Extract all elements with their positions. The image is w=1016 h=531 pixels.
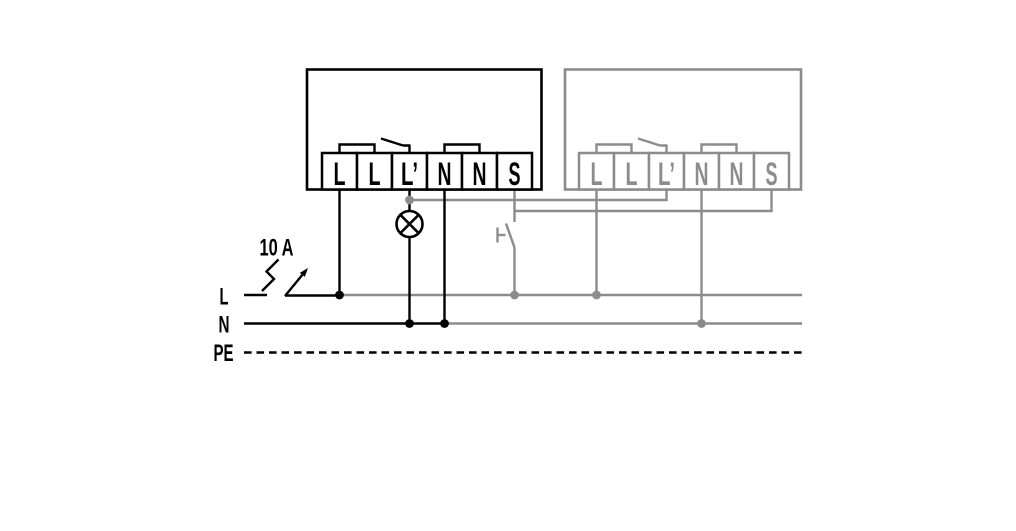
junction-dot [697,319,706,328]
junction-dot [592,291,601,300]
labels: 10 A L N PE [214,235,294,368]
wiring-diagram-canvas: L L L’ N N S [0,0,1016,531]
terminal-label: S [509,156,521,192]
terminal-label: N [730,156,744,192]
push-button-icon [498,224,515,248]
breaker-rating-label: 10 A [260,235,294,262]
device-2-group: L L L’ N N S [565,70,801,193]
device-1-group: L L L’ N N S [307,70,542,193]
terminal-label: L [626,156,638,192]
terminal-label: S [766,156,778,192]
terminal-label: L [591,156,603,192]
l-bus-label: L [220,284,229,311]
n-bus-label: N [219,312,230,339]
primary-wiring [244,190,802,353]
terminal-label: L’ [401,156,418,192]
terminal-label: L [369,156,381,192]
pe-bus-label: PE [214,340,234,367]
junction-dot [440,319,449,328]
junction-dot [510,291,519,300]
junction-dots [335,196,706,328]
terminal-label: L’ [658,156,675,192]
junction-dot [335,291,344,300]
terminal-label: N [438,156,452,192]
lamp-icon [397,211,423,237]
junction-dot [405,319,414,328]
junction-dot [405,196,414,205]
wiring-diagram: L L L’ N N S [0,0,1016,531]
circuit-breaker-icon [262,260,308,297]
terminal-label: L [334,156,346,192]
terminal-label: N [473,156,487,192]
terminal-label: N [695,156,709,192]
